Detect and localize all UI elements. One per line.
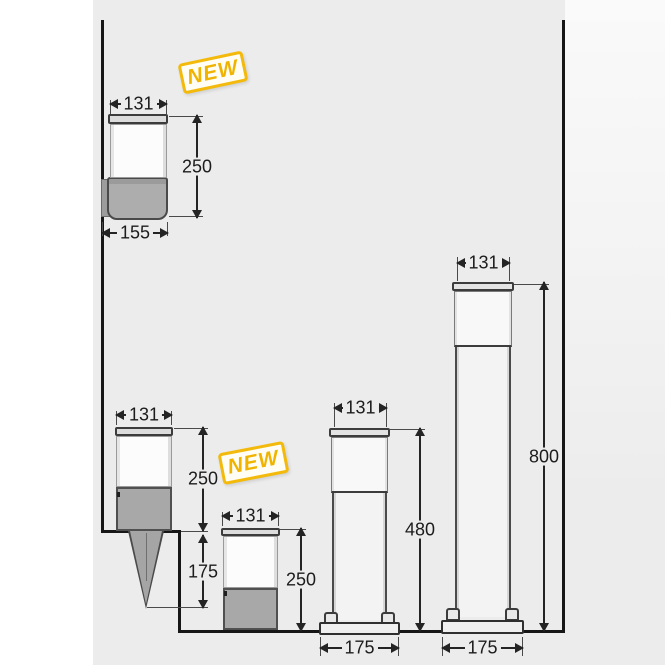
arrow-left-icon — [221, 511, 230, 521]
arrow-left-icon — [333, 403, 342, 413]
arrow-down-icon — [539, 623, 549, 632]
medium-bollard-lamp-head — [331, 437, 388, 493]
medium-bollard-column — [332, 493, 387, 620]
wall-light-diffuser — [110, 124, 167, 178]
arrow-right-icon — [391, 643, 400, 653]
small-bollard-cap — [221, 528, 280, 536]
dim-tall-bollard-top-width: 131 — [457, 255, 510, 271]
dim-label: 175 — [464, 639, 500, 658]
spike-light-body — [116, 487, 172, 531]
dim-wall-light-bottom-width: 155 — [102, 225, 168, 241]
dim-medium-bollard-top-width: 131 — [334, 400, 387, 416]
dim-medium-bollard-height: 480 — [412, 428, 428, 631]
arrow-left-icon — [101, 228, 110, 238]
arrow-right-icon — [164, 410, 173, 420]
arrow-down-icon — [192, 210, 202, 219]
dim-small-bollard-top-width: 131 — [222, 508, 279, 524]
spike-light-cap — [115, 427, 173, 436]
medium-bollard-cap — [329, 428, 390, 437]
spike-ridge-line — [146, 533, 147, 581]
arrow-up-icon — [539, 281, 549, 290]
dim-spike-light-spike-depth: 175 — [195, 535, 211, 608]
dim-label: 131 — [126, 406, 162, 425]
arrow-down-icon — [198, 523, 208, 532]
tall-bollard-column — [455, 347, 511, 617]
spike-light-diffuser — [116, 436, 172, 487]
tall-bollard-lamp-head — [454, 291, 512, 347]
arrow-left-icon — [109, 99, 118, 109]
dim-label: 131 — [342, 399, 378, 418]
dim-wall-light-top-width: 131 — [110, 96, 167, 112]
new-badge-middle: NEW — [218, 441, 290, 485]
dim-tall-bollard-height: 800 — [536, 282, 552, 631]
dim-small-bollard-height: 250 — [293, 528, 309, 631]
arrow-up-icon — [192, 114, 202, 123]
ground-step-vertical — [178, 530, 181, 633]
spike-light-ground-spike — [128, 531, 164, 609]
arrow-down-icon — [198, 600, 208, 609]
dim-spike-light-height: 250 — [195, 427, 211, 531]
wall-light-bracket — [107, 177, 168, 220]
medium-bollard-base — [319, 622, 400, 635]
arrow-right-icon — [502, 258, 511, 268]
left-page-margin — [0, 0, 93, 665]
small-bollard-diffuser — [223, 536, 278, 588]
arrow-right-icon — [515, 643, 524, 653]
dim-label: 175 — [185, 562, 221, 581]
wall-line-right — [562, 20, 565, 633]
dim-label: 800 — [526, 447, 562, 466]
right-page-margin — [565, 0, 665, 665]
new-badge-top: NEW — [177, 50, 248, 94]
new-badge-label: NEW — [226, 446, 282, 479]
arrow-right-icon — [159, 99, 168, 109]
arrow-up-icon — [198, 534, 208, 543]
dim-wall-light-height: 250 — [189, 115, 205, 218]
dim-label: 131 — [120, 95, 156, 114]
dimension-diagram: 131 250 155 NEW 131 — [0, 0, 665, 665]
arrow-left-icon — [319, 643, 328, 653]
spike-light-screw — [117, 492, 120, 497]
small-bollard-body — [223, 588, 278, 630]
tall-bollard-cap — [452, 282, 514, 291]
dim-label: 131 — [465, 254, 501, 273]
arrow-right-icon — [160, 228, 169, 238]
arrow-left-icon — [456, 258, 465, 268]
dim-tall-bollard-base-width: 175 — [442, 640, 523, 656]
arrow-up-icon — [415, 427, 425, 436]
dim-label: 480 — [402, 520, 438, 539]
dim-label: 155 — [117, 224, 153, 243]
dim-medium-bollard-base-width: 175 — [320, 640, 399, 656]
dim-label: 250 — [185, 470, 221, 489]
arrow-down-icon — [296, 623, 306, 632]
dim-label: 250 — [283, 570, 319, 589]
arrow-right-icon — [271, 511, 280, 521]
arrow-left-icon — [115, 410, 124, 420]
arrow-up-icon — [198, 426, 208, 435]
arrow-down-icon — [415, 623, 425, 632]
dim-label: 131 — [232, 507, 268, 526]
small-bollard-screw — [224, 591, 227, 596]
arrow-right-icon — [379, 403, 388, 413]
dim-spike-light-top-width: 131 — [116, 407, 172, 423]
new-badge-label: NEW — [185, 55, 241, 89]
arrow-up-icon — [296, 527, 306, 536]
wall-light-cap — [108, 114, 168, 124]
dim-label: 250 — [179, 157, 215, 176]
arrow-left-icon — [441, 643, 450, 653]
dim-label: 175 — [341, 639, 377, 658]
tall-bollard-base — [441, 620, 524, 634]
